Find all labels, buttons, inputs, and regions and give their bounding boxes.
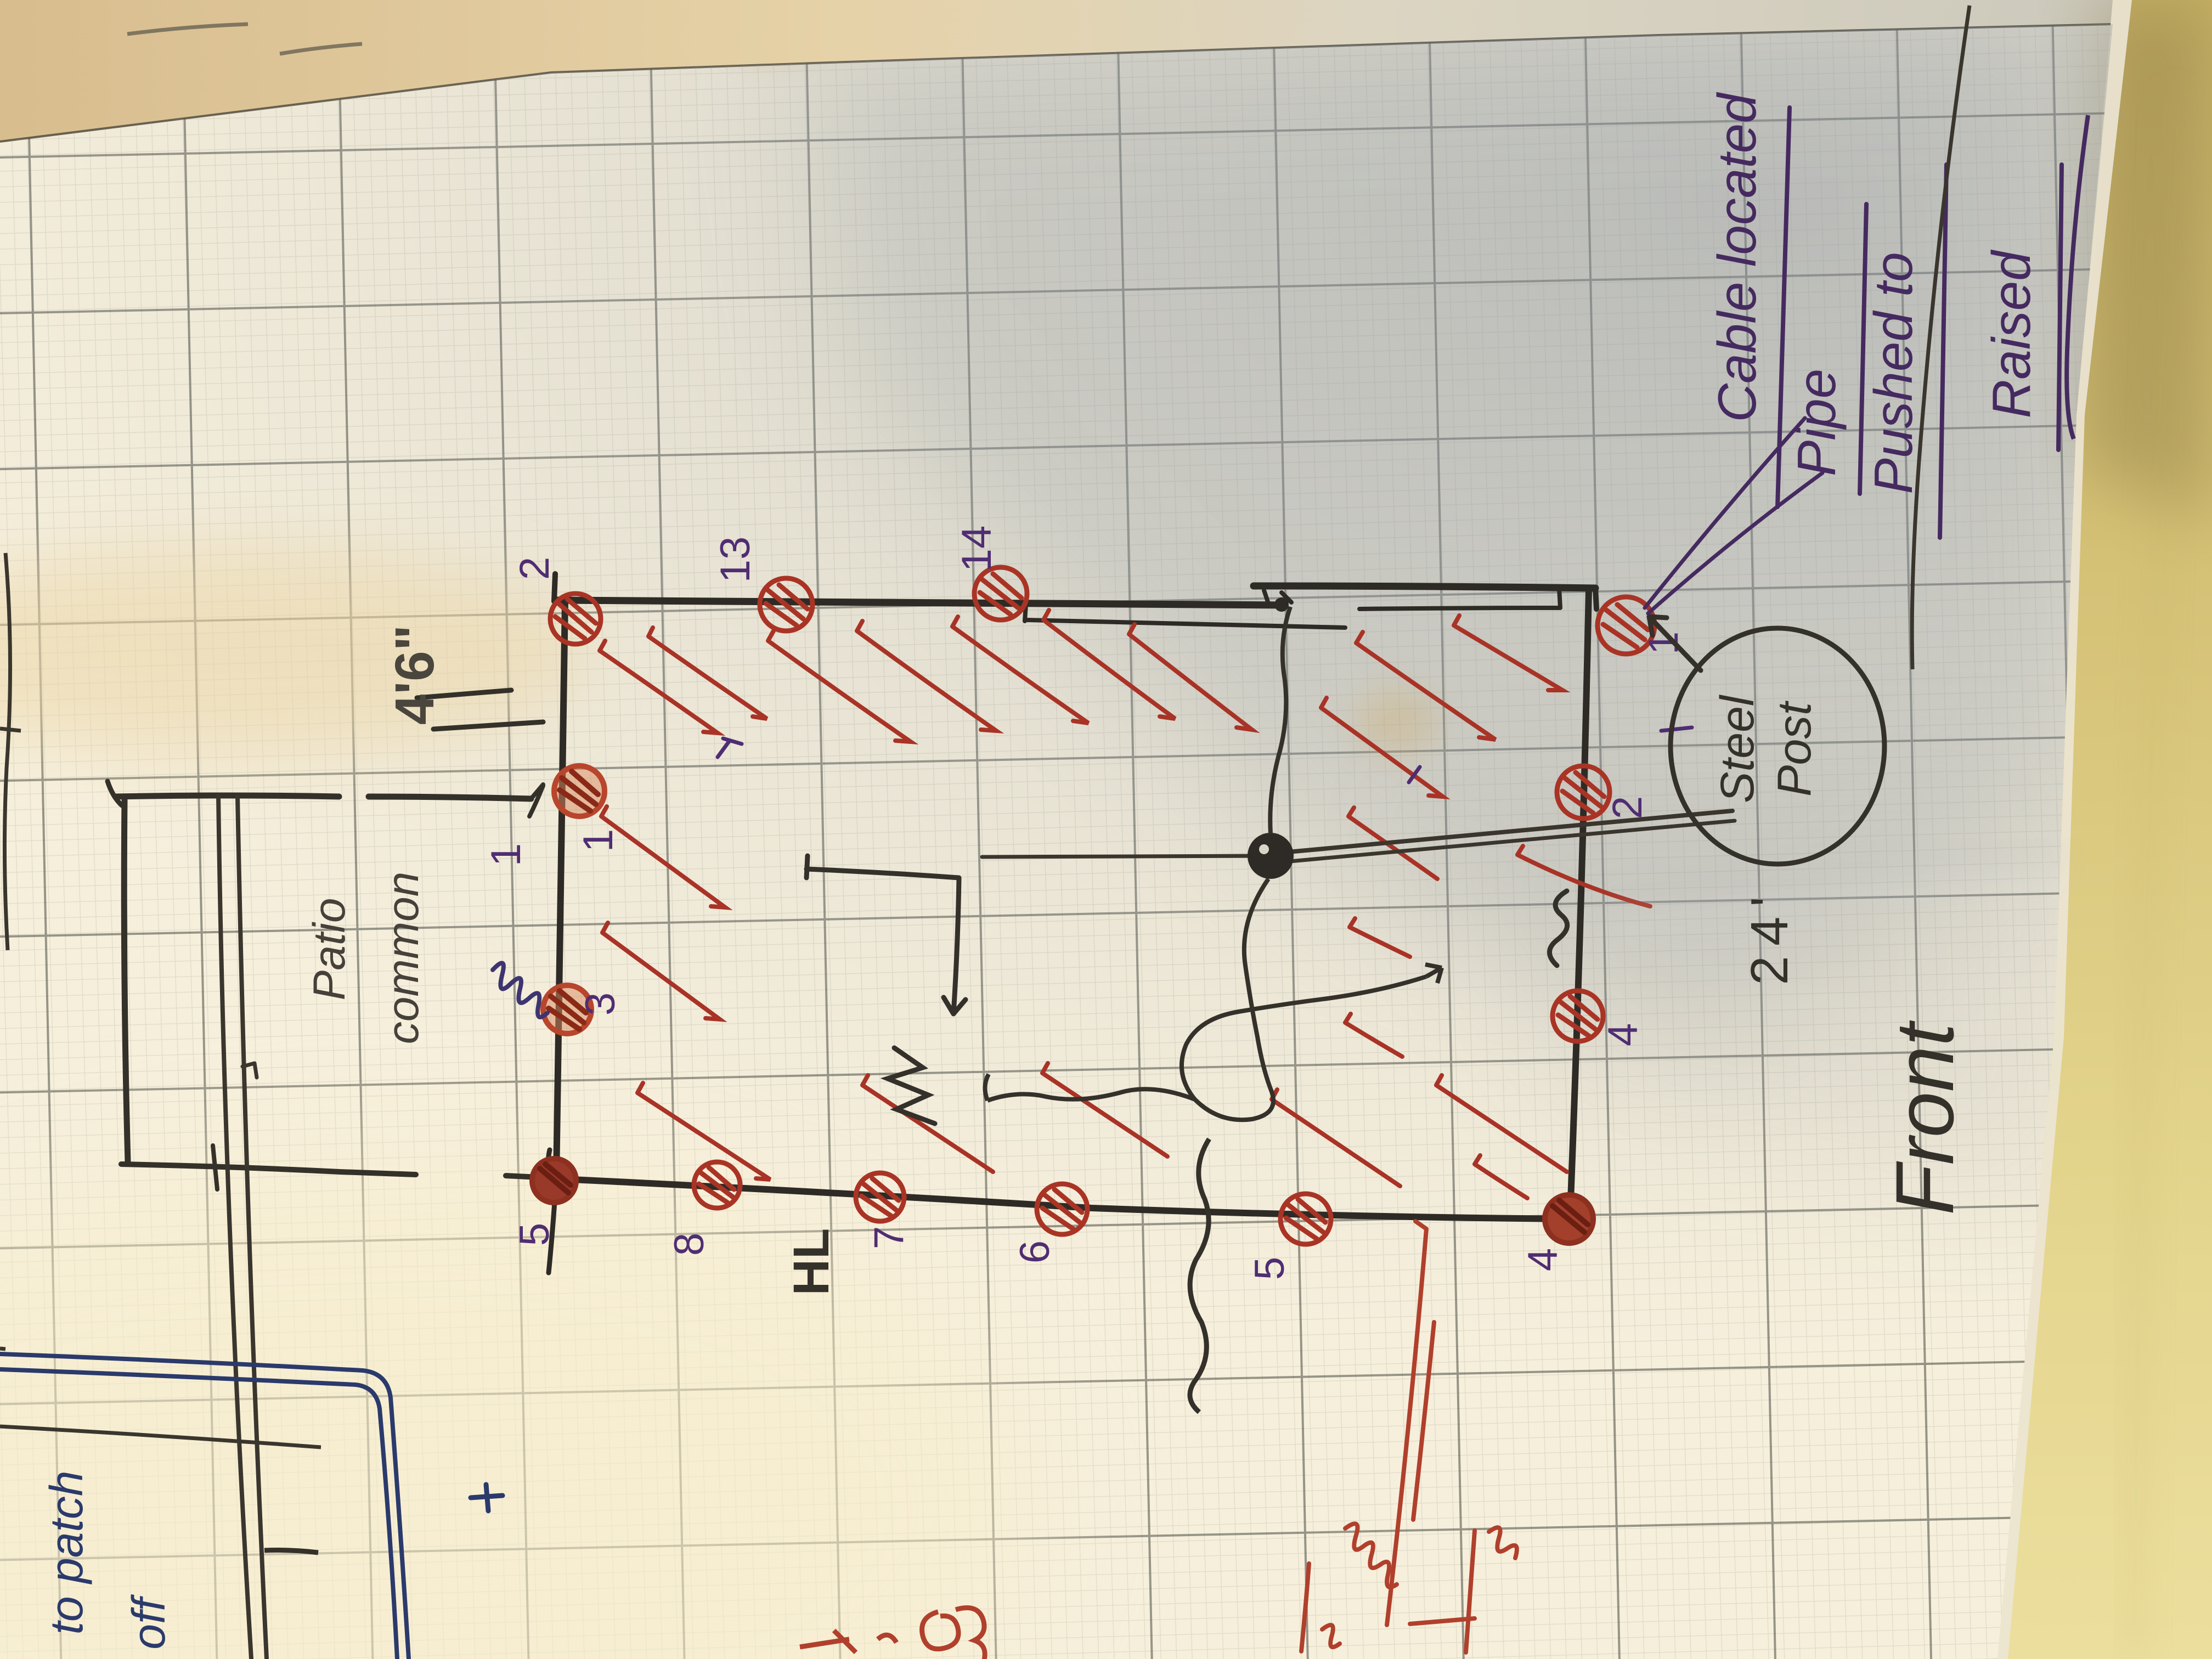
svg-text:1: 1 bbox=[575, 829, 622, 852]
svg-text:to patch: to patch bbox=[41, 1471, 92, 1635]
svg-text:Steel: Steel bbox=[1711, 694, 1764, 803]
svg-text:Post: Post bbox=[1768, 701, 1821, 797]
svg-text:2: 2 bbox=[1604, 796, 1651, 819]
svg-text:4: 4 bbox=[1520, 1248, 1566, 1271]
svg-text:Raised: Raised bbox=[1981, 249, 2041, 419]
svg-text:Pushed to: Pushed to bbox=[1863, 252, 1923, 494]
svg-text:4'6": 4'6" bbox=[384, 625, 445, 725]
svg-text:off: off bbox=[123, 1594, 174, 1650]
svg-text:6: 6 bbox=[1012, 1240, 1058, 1263]
svg-text:5: 5 bbox=[511, 1223, 558, 1246]
svg-text:14: 14 bbox=[953, 526, 1000, 572]
svg-text:4: 4 bbox=[1600, 1023, 1646, 1046]
svg-text:1: 1 bbox=[483, 843, 529, 866]
svg-text:Pipe: Pipe bbox=[1786, 369, 1847, 476]
svg-text:13: 13 bbox=[712, 537, 759, 583]
svg-text:3: 3 bbox=[577, 992, 624, 1015]
svg-text:2: 2 bbox=[511, 557, 558, 580]
svg-text:HL: HL bbox=[783, 1228, 839, 1296]
svg-text:8: 8 bbox=[666, 1233, 713, 1256]
svg-text:Patio: Patio bbox=[304, 898, 354, 1001]
svg-text:24': 24' bbox=[1740, 887, 1799, 985]
svg-text:5: 5 bbox=[1246, 1257, 1293, 1280]
svg-text:common: common bbox=[378, 872, 428, 1044]
svg-text:7: 7 bbox=[866, 1226, 912, 1249]
svg-text:Cable located: Cable located bbox=[1707, 92, 1767, 422]
svg-text:Front: Front bbox=[1878, 1020, 1971, 1215]
